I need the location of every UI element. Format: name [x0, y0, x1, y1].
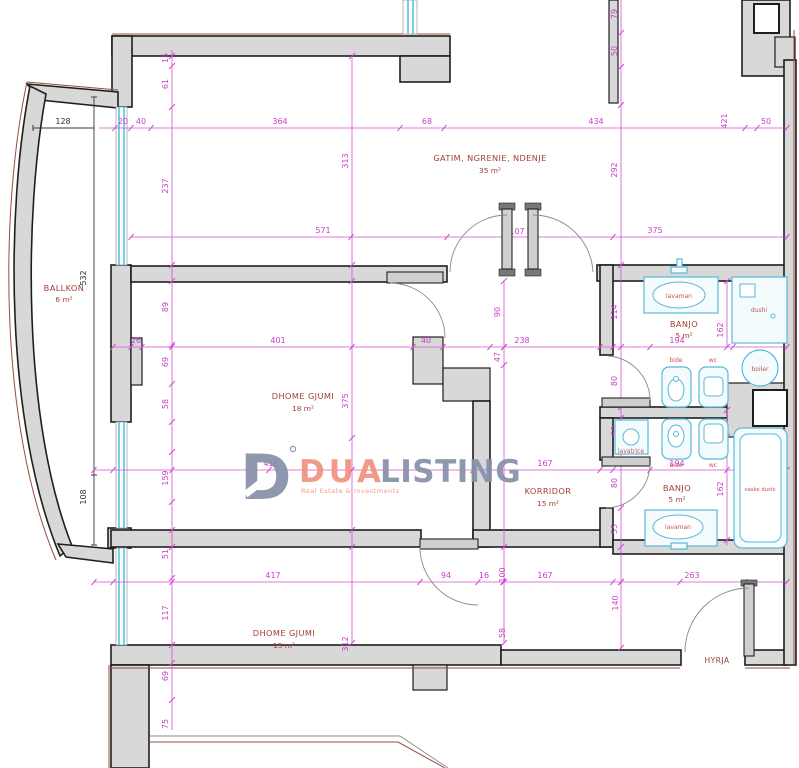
red-line-terrace: [150, 742, 445, 768]
dim-label: 237: [161, 178, 170, 193]
wall-bath2-left: [600, 418, 613, 460]
dim-label: 162: [716, 481, 725, 496]
windows: [116, 0, 417, 645]
room-label-hyrja: HYRJA: [705, 656, 730, 665]
room-area-ballkon: 6 m²: [55, 295, 72, 304]
dim-label: 16: [479, 571, 489, 580]
room-label-korridor: KORRIDOR: [525, 486, 572, 496]
wall-step-block: [413, 665, 447, 690]
wall-balcony-bottom: [58, 544, 113, 563]
room-label-gatim: GATIM, NGRENIE, NDENJE: [433, 153, 546, 163]
entry-door-arc: [685, 588, 749, 652]
floor-plan-page: 128 20 40 364 68 434 421 50 15 61 79 50 …: [0, 0, 799, 768]
fixture-label-bide: bide: [670, 462, 683, 469]
dim-label: 15: [161, 53, 170, 63]
door-leaf-bedroom18: [387, 272, 443, 283]
wall-corridor-south: [473, 530, 613, 547]
fixture-label-wc: wc: [709, 357, 717, 364]
window-top-frame: [403, 0, 417, 34]
dim-label: 68: [422, 117, 432, 126]
dim-label: 114: [610, 304, 619, 319]
toilet-tank: [704, 377, 723, 396]
room-label-dhome-gjumi-18: DHOME GJUMI: [272, 391, 334, 401]
wall-step-2: [443, 368, 490, 401]
wall-entry-bottom-left: [501, 650, 681, 665]
dim-label: 90: [493, 307, 502, 317]
dimension-lines: [33, 0, 790, 730]
room-label-banjo-top: BANJO: [670, 319, 698, 329]
dim-label: 108: [79, 489, 88, 504]
window-left-c-frame: [116, 548, 127, 645]
entry-door-leaf: [744, 584, 754, 656]
door-leaf-bath1: [602, 398, 650, 407]
wall-bedroom15-top: [111, 530, 421, 547]
dim-label: 263: [684, 571, 699, 580]
dim-label: 128: [55, 117, 70, 126]
dim-label: 401: [270, 336, 285, 345]
dim-label: 55: [610, 524, 619, 534]
faucet-icon: [677, 259, 682, 267]
dim-label: 312: [341, 636, 350, 651]
double-door-leaf-left: [502, 209, 512, 269]
fixture-label-wc: wc: [709, 462, 717, 469]
logo-text-listing: LISTING: [380, 454, 521, 490]
dim-label: 292: [610, 162, 619, 177]
dim-label: 140: [611, 595, 620, 610]
wall-left-mid: [111, 265, 131, 422]
logo-text-dua: DUA: [299, 454, 385, 490]
double-door-jamb: [525, 269, 541, 276]
dim-label: 69: [161, 357, 170, 367]
wall-top-pier: [400, 56, 450, 82]
dim-label: 167: [537, 459, 552, 468]
dim-label: 100: [498, 567, 507, 582]
faucet-icon: [671, 267, 687, 273]
dim-label: 20: [118, 117, 128, 126]
room-label-ballkon: BALLKON: [44, 283, 85, 293]
shower-head-icon: [740, 284, 755, 297]
double-door-arc-right: [533, 215, 593, 272]
dim-label: 313: [341, 153, 350, 168]
dim-label: 69: [161, 671, 170, 681]
logo-tagline: Real Estate & Investments: [301, 487, 400, 495]
dim-label: 75: [161, 719, 170, 729]
shaft-opening: [753, 390, 787, 426]
washing-machine-drum: [623, 429, 639, 445]
fixture-label-lavatrice: lavatrice: [618, 448, 644, 455]
dim-label: 26: [131, 336, 141, 345]
wall-balcony-curved: [14, 86, 72, 556]
fixture-label-lavaman: lavaman: [665, 524, 691, 531]
dim-label: 434: [588, 117, 603, 126]
bidet-bowl: [668, 379, 684, 401]
dim-label: 364: [272, 117, 287, 126]
dim-label: 58: [498, 628, 507, 638]
fixture-label-bide: bide: [670, 357, 683, 364]
dim-label: 61: [161, 79, 170, 89]
column-notch: [754, 4, 779, 33]
room-area-dhome-gjumi-18: 18 m²: [292, 404, 314, 413]
faucet-icon: [671, 543, 687, 549]
room-area-banjo-top: 5 m²: [675, 331, 692, 340]
dim-label: 159: [161, 470, 170, 485]
wall-terrace-strip: [111, 665, 149, 768]
double-door-arc-left: [450, 215, 507, 272]
dim-label: 117: [161, 605, 170, 620]
window-left-a-frame: [116, 107, 127, 265]
dim-label: 47: [493, 352, 502, 362]
dim-label: 80: [610, 376, 619, 386]
shower-drain-icon: [771, 314, 775, 318]
room-area-dhome-gjumi-15: 15 m²: [273, 641, 295, 650]
dim-label: 167: [537, 571, 552, 580]
dim-label: 375: [341, 393, 350, 408]
door-leaf-bath2: [602, 457, 650, 466]
toilet-tank: [704, 424, 723, 443]
window-left-b-frame: [116, 422, 127, 528]
floor-plan: 128 20 40 364 68 434 421 50 15 61 79 50 …: [0, 0, 799, 768]
dim-label: 50: [761, 117, 771, 126]
bidet-tap: [674, 377, 679, 382]
dim-label: 40: [421, 336, 431, 345]
fixture-label-dushi: dushi: [751, 307, 768, 314]
fixture-label-vaske-dushi: vaske dushi: [744, 487, 775, 493]
room-label-dhome-gjumi-15: DHOME GJUMI: [253, 628, 315, 638]
dim-label: 51: [161, 549, 170, 559]
dim-label: 417: [265, 571, 280, 580]
room-label-banjo-bottom: BANJO: [663, 483, 691, 493]
double-door-jamb: [499, 269, 515, 276]
dim-label: 89: [161, 302, 170, 312]
door-leaf-bedroom15: [420, 539, 478, 549]
room-area-korridor: 15 m²: [537, 499, 559, 508]
room-area-banjo-bottom: 5 m²: [668, 495, 685, 504]
room-area-gatim: 35 m²: [479, 166, 501, 175]
dim-label: 375: [647, 226, 662, 235]
dim-label: 50: [610, 46, 619, 56]
dim-label: 58: [161, 399, 170, 409]
dim-label: 40: [136, 117, 146, 126]
dim-label: 421: [720, 113, 729, 128]
dim-label: 571: [315, 226, 330, 235]
wall-between-baths: [600, 407, 745, 418]
door-arc-bedroom18: [390, 283, 445, 338]
fixture-label-lavaman: lavaman: [666, 293, 692, 300]
terrace-outline: [150, 736, 448, 768]
dim-label: 79: [610, 9, 619, 19]
double-door-leaf-right: [528, 209, 538, 269]
dim-label: 80: [610, 478, 619, 488]
fixture-label-boiler: boiler: [752, 366, 770, 373]
bidet-tap: [674, 432, 679, 437]
dim-label: 238: [514, 336, 529, 345]
dim-label: 94: [441, 571, 451, 580]
dim-label: 162: [716, 322, 725, 337]
